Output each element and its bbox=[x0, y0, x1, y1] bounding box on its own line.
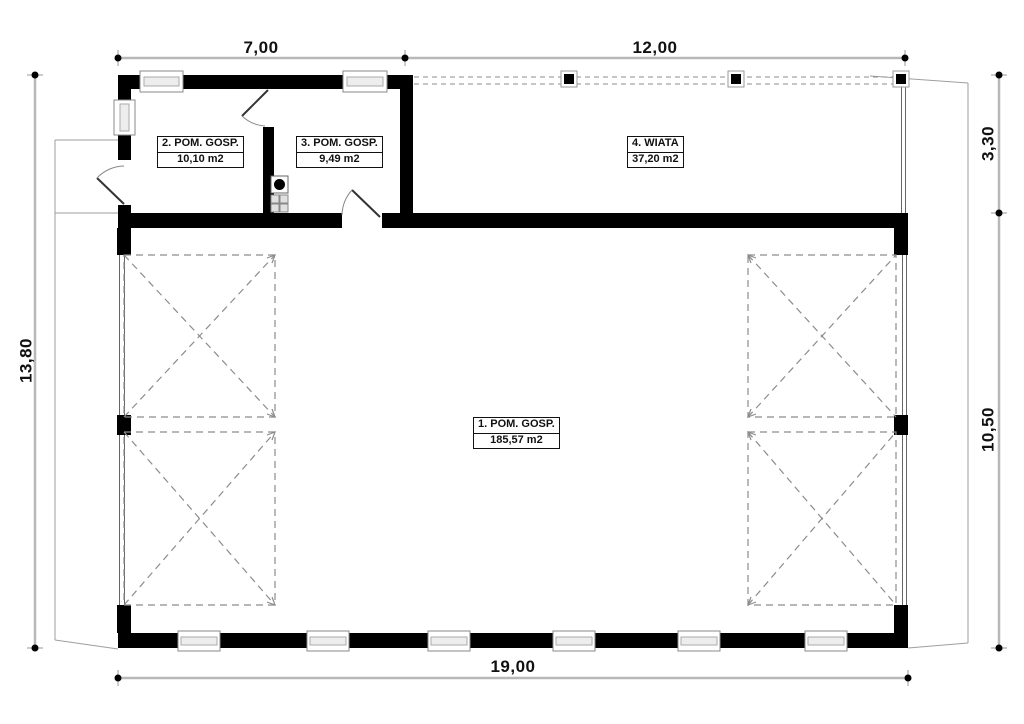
window bbox=[428, 631, 470, 651]
wall-pier bbox=[117, 605, 131, 633]
gate-x-area bbox=[124, 432, 275, 605]
room-name: 4. WIATA bbox=[628, 137, 683, 153]
gate-x-area bbox=[748, 432, 896, 605]
wall-bottom bbox=[720, 633, 805, 648]
room-label-room1: 1. POM. GOSP. 185,57 m2 bbox=[473, 417, 560, 449]
wall-bottom bbox=[847, 633, 908, 648]
room-name: 3. POM. GOSP. bbox=[297, 137, 382, 153]
wiata-columns bbox=[561, 71, 909, 87]
dimension-bottom: 19,00 bbox=[478, 657, 548, 677]
gate-x-area bbox=[124, 255, 275, 417]
window bbox=[307, 631, 349, 651]
window bbox=[678, 631, 720, 651]
wiata-column bbox=[728, 71, 744, 87]
wall-pier bbox=[894, 228, 908, 255]
room-area: 9,49 m2 bbox=[297, 153, 382, 168]
wall-pier bbox=[894, 605, 908, 633]
room-area: 185,57 m2 bbox=[474, 434, 559, 449]
floor-plan-page: 7,00 12,00 19,00 13,80 3,30 10,50 2. POM… bbox=[0, 0, 1024, 724]
door-swing-room3-hall bbox=[342, 190, 380, 217]
wiata-column bbox=[893, 71, 909, 87]
room-area: 37,20 m2 bbox=[628, 153, 683, 168]
room-name: 1. POM. GOSP. bbox=[474, 418, 559, 434]
wall-left bbox=[118, 89, 131, 100]
room-label-room4: 4. WIATA 37,20 m2 bbox=[627, 136, 684, 168]
wiata-column bbox=[561, 71, 577, 87]
wall-bottom bbox=[595, 633, 678, 648]
wall-bottom bbox=[470, 633, 553, 648]
window bbox=[343, 71, 387, 92]
door-swing-exterior bbox=[97, 166, 124, 204]
window bbox=[805, 631, 847, 651]
door-swing-room2-room3 bbox=[242, 90, 268, 126]
room-label-room3: 3. POM. GOSP. 9,49 m2 bbox=[296, 136, 383, 168]
wall-room3-wiata bbox=[400, 75, 413, 228]
dimension-top-right: 12,00 bbox=[620, 38, 690, 58]
room-label-room2: 2. POM. GOSP. 10,10 m2 bbox=[157, 136, 244, 168]
window bbox=[114, 100, 135, 135]
dimension-left: 13,80 bbox=[17, 326, 38, 396]
window bbox=[178, 631, 220, 651]
room-area: 10,10 m2 bbox=[158, 153, 243, 168]
floor-plan-drawing bbox=[0, 0, 1024, 724]
wall-bottom bbox=[349, 633, 428, 648]
wall-main-top bbox=[118, 213, 342, 228]
dimension-right-top: 3,30 bbox=[979, 109, 1000, 179]
wiata-roof-dashed-line bbox=[405, 77, 905, 84]
wall-pier bbox=[117, 228, 131, 255]
dimension-top-left: 7,00 bbox=[231, 38, 291, 58]
gate-x-area bbox=[748, 255, 896, 417]
room-name: 2. POM. GOSP. bbox=[158, 137, 243, 153]
window bbox=[553, 631, 595, 651]
wall-bottom bbox=[118, 633, 178, 648]
wall-bottom bbox=[220, 633, 307, 648]
wall-left bbox=[118, 205, 131, 214]
window bbox=[140, 71, 183, 92]
wall-main-top bbox=[382, 213, 908, 228]
wall-left bbox=[118, 135, 131, 160]
dimension-right-bottom: 10,50 bbox=[979, 395, 1000, 465]
